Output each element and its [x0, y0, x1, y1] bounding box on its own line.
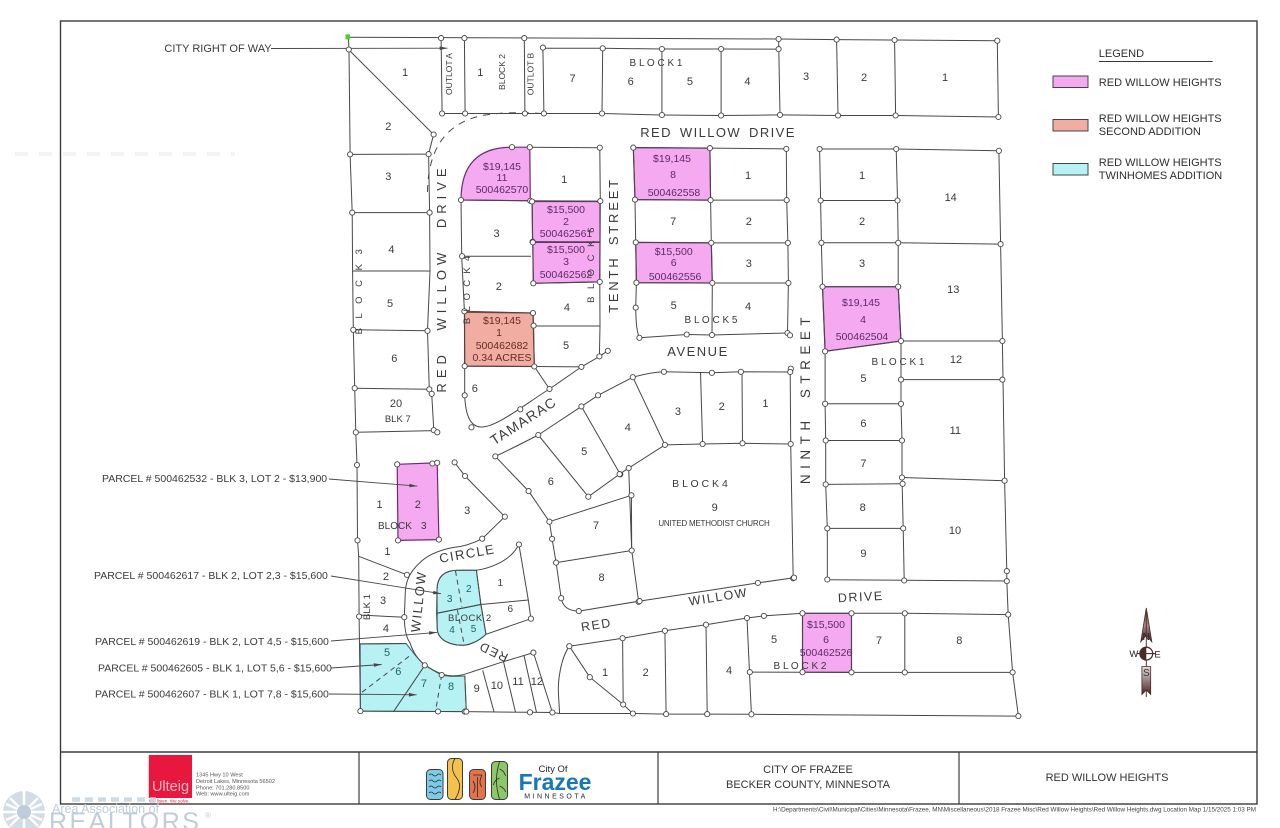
svg-text:RED WILLOW HEIGHTS: RED WILLOW HEIGHTS	[1099, 113, 1222, 125]
svg-text:2: 2	[466, 584, 472, 595]
svg-text:6: 6	[391, 353, 397, 365]
svg-text:E: E	[1154, 649, 1160, 660]
svg-text:CITY OF FRAZEE: CITY OF FRAZEE	[763, 764, 853, 776]
svg-text:B L O C K 5: B L O C K 5	[685, 315, 738, 326]
svg-text:3: 3	[421, 521, 427, 532]
svg-text:$19,145: $19,145	[842, 297, 880, 309]
svg-text:B L O C K 4: B L O C K 4	[462, 254, 473, 324]
svg-text:RED WILLOW DRIVE: RED WILLOW DRIVE	[434, 163, 449, 392]
svg-text:500462558: 500462558	[648, 187, 701, 199]
svg-text:8: 8	[860, 502, 866, 514]
svg-text:BLK 7: BLK 7	[385, 414, 411, 425]
svg-text:4: 4	[564, 302, 570, 314]
svg-text:5: 5	[687, 76, 693, 88]
svg-text:1: 1	[496, 327, 502, 339]
svg-text:RED WILLOW HEIGHTS: RED WILLOW HEIGHTS	[1046, 772, 1169, 784]
svg-text:SECOND ADDITION: SECOND ADDITION	[1099, 126, 1201, 138]
svg-text:5: 5	[563, 340, 569, 352]
svg-text:3: 3	[380, 595, 386, 607]
svg-text:11: 11	[497, 172, 508, 184]
svg-text:500462526: 500462526	[800, 647, 853, 659]
svg-text:12: 12	[531, 676, 543, 688]
svg-text:9: 9	[860, 548, 866, 560]
svg-text:BLK 1: BLK 1	[362, 594, 373, 620]
svg-text:DRIVE: DRIVE	[838, 589, 884, 605]
svg-text:9: 9	[474, 683, 480, 695]
svg-text:$15,500: $15,500	[807, 619, 845, 631]
svg-text:REALTORS: REALTORS	[49, 808, 201, 828]
svg-text:7: 7	[593, 520, 599, 532]
svg-text:500462561: 500462561	[540, 228, 593, 240]
svg-text:B L O C K 4: B L O C K 4	[672, 478, 728, 490]
svg-text:13: 13	[947, 284, 959, 296]
svg-text:®: ®	[205, 811, 211, 820]
svg-text:500462556: 500462556	[649, 271, 702, 283]
svg-text:5: 5	[860, 373, 866, 385]
svg-text:1: 1	[377, 499, 383, 511]
svg-text:NINTH STREET: NINTH STREET	[798, 312, 813, 484]
svg-text:8: 8	[599, 572, 605, 584]
svg-text:5: 5	[671, 300, 677, 312]
svg-text:1: 1	[859, 170, 865, 182]
svg-text:5: 5	[771, 634, 777, 646]
svg-text:5: 5	[387, 298, 393, 310]
svg-text:PARCEL # 500462617 - BLK 2, LO: PARCEL # 500462617 - BLK 2, LOT 2,3 - $1…	[94, 570, 328, 582]
svg-text:3: 3	[746, 258, 752, 270]
svg-text:H:\Departments\Civil\Municipal: H:\Departments\Civil\Municipal\Cities\Mi…	[773, 807, 1256, 814]
svg-text:RED WILLOW DRIVE: RED WILLOW DRIVE	[640, 125, 796, 140]
svg-text:BLOCK: BLOCK	[378, 521, 412, 532]
svg-text:2: 2	[859, 216, 865, 228]
svg-text:1: 1	[745, 170, 751, 182]
svg-text:N: N	[1143, 632, 1150, 643]
svg-text:1: 1	[477, 67, 483, 79]
svg-text:3: 3	[493, 228, 499, 240]
svg-text:1: 1	[561, 174, 567, 186]
svg-text:6: 6	[628, 76, 634, 88]
svg-text:500462682: 500462682	[476, 340, 529, 352]
svg-text:8: 8	[448, 681, 454, 693]
svg-text:$15,500: $15,500	[547, 204, 585, 216]
svg-text:W: W	[1129, 649, 1138, 660]
svg-text:6: 6	[823, 634, 829, 646]
svg-text:6: 6	[395, 666, 401, 678]
svg-text:B L O C K 2: B L O C K 2	[774, 661, 827, 672]
svg-text:UNITED METHODIST CHURCH: UNITED METHODIST CHURCH	[658, 519, 770, 528]
svg-text:2: 2	[746, 216, 752, 228]
svg-text:4: 4	[449, 625, 455, 636]
svg-text:5: 5	[384, 647, 390, 659]
svg-text:PARCEL # 500462532 - BLK 3, LO: PARCEL # 500462532 - BLK 3, LOT 2 - $13,…	[102, 473, 327, 485]
svg-text:6: 6	[860, 418, 866, 430]
svg-text:Web: www.ulteig.com: Web: www.ulteig.com	[196, 792, 250, 798]
svg-text:2: 2	[383, 571, 389, 583]
svg-text:3: 3	[675, 406, 681, 418]
svg-text:7: 7	[860, 458, 866, 470]
svg-text:9: 9	[712, 502, 718, 514]
svg-text:PARCEL # 500462605 - BLK 1, LO: PARCEL # 500462605 - BLK 1, LOT 5,6 - $1…	[98, 663, 332, 675]
svg-text:Phone: 701.280.8500: Phone: 701.280.8500	[196, 785, 250, 791]
svg-text:1: 1	[384, 546, 390, 558]
svg-text:S: S	[1143, 668, 1150, 679]
svg-text:1: 1	[762, 398, 768, 410]
svg-text:RED WILLOW HEIGHTS: RED WILLOW HEIGHTS	[1099, 157, 1222, 169]
svg-text:1: 1	[498, 578, 504, 589]
svg-text:20: 20	[390, 398, 402, 410]
svg-text:500462562: 500462562	[540, 269, 593, 281]
svg-text:B L O C K 6: B L O C K 6	[586, 225, 597, 303]
svg-text:500462570: 500462570	[476, 184, 529, 196]
svg-text:AVENUE: AVENUE	[667, 344, 729, 359]
svg-text:8: 8	[956, 635, 962, 647]
svg-text:5: 5	[471, 624, 477, 635]
svg-text:$19,145: $19,145	[483, 315, 521, 327]
svg-text:14: 14	[945, 192, 957, 204]
svg-text:OUTLOT A: OUTLOT A	[444, 53, 454, 95]
svg-text:0.34 ACRES: 0.34 ACRES	[473, 352, 532, 364]
svg-text:MINNESOTA: MINNESOTA	[524, 794, 588, 801]
svg-text:3: 3	[803, 71, 809, 83]
svg-text:2: 2	[861, 72, 867, 84]
svg-text:RED WILLOW HEIGHTS: RED WILLOW HEIGHTS	[1099, 77, 1222, 89]
svg-text:4: 4	[860, 314, 866, 326]
svg-text:4: 4	[744, 76, 750, 88]
svg-text:4: 4	[745, 301, 751, 313]
svg-text:Frazee: Frazee	[519, 769, 592, 795]
svg-text:3: 3	[563, 256, 569, 268]
svg-text:500462504: 500462504	[836, 331, 889, 343]
svg-text:3: 3	[385, 171, 391, 183]
svg-text:Ulteig: Ulteig	[152, 779, 189, 795]
svg-text:10: 10	[491, 680, 503, 692]
svg-text:3: 3	[464, 505, 470, 517]
svg-text:6: 6	[472, 383, 478, 395]
svg-text:B L O C K 1: B L O C K 1	[872, 357, 925, 368]
svg-text:OUTLOT B: OUTLOT B	[526, 52, 536, 95]
svg-text:2: 2	[643, 667, 649, 679]
svg-text:TENTH STREET: TENTH STREET	[606, 177, 621, 313]
svg-text:3: 3	[447, 594, 453, 605]
svg-text:Detroit Lakes, Minnesota 5650: Detroit Lakes, Minnesota 56502	[196, 779, 275, 785]
svg-text:7: 7	[421, 678, 427, 690]
svg-text:6: 6	[671, 257, 677, 269]
svg-text:4: 4	[726, 665, 732, 677]
svg-text:1: 1	[942, 72, 948, 84]
svg-text:PARCEL # 500462619 - BLK 2, LO: PARCEL # 500462619 - BLK 2, LOT 4,5 - $1…	[95, 636, 329, 648]
svg-text:7: 7	[570, 73, 576, 85]
svg-text:6: 6	[548, 476, 554, 488]
svg-text:TWINHOMES ADDITION: TWINHOMES ADDITION	[1099, 170, 1223, 182]
svg-text:4: 4	[625, 422, 631, 434]
svg-text:4: 4	[383, 623, 389, 635]
svg-text:LEGEND: LEGEND	[1099, 48, 1144, 60]
svg-text:5: 5	[581, 446, 587, 458]
svg-text:BLOCK 2: BLOCK 2	[448, 613, 492, 624]
svg-text:1345 Hwy 10 West: 1345 Hwy 10 West	[196, 773, 243, 779]
svg-text:$15,500: $15,500	[547, 244, 585, 256]
svg-text:B L O C K 1: B L O C K 1	[630, 58, 683, 69]
svg-text:3: 3	[859, 258, 865, 270]
svg-text:B L O C K 3: B L O C K 3	[354, 246, 365, 335]
svg-text:11: 11	[950, 425, 961, 437]
svg-text:7: 7	[876, 635, 882, 647]
svg-text:6: 6	[508, 604, 514, 615]
svg-text:10: 10	[949, 525, 961, 537]
svg-text:CITY RIGHT OF WAY: CITY RIGHT OF WAY	[164, 43, 272, 55]
svg-text:1: 1	[402, 67, 408, 79]
svg-text:BLOCK 2: BLOCK 2	[497, 54, 507, 90]
svg-text:4: 4	[388, 244, 394, 256]
svg-text:2: 2	[385, 121, 391, 133]
svg-text:7: 7	[670, 216, 676, 228]
svg-text:12: 12	[950, 354, 962, 366]
svg-text:2: 2	[563, 216, 569, 228]
svg-text:2: 2	[719, 401, 725, 413]
svg-text:2: 2	[415, 499, 421, 511]
svg-text:11: 11	[512, 676, 523, 688]
svg-text:$19,145: $19,145	[653, 153, 691, 165]
svg-text:2: 2	[496, 281, 502, 293]
svg-text:BECKER COUNTY, MINNESOTA: BECKER COUNTY, MINNESOTA	[726, 779, 891, 791]
svg-text:1: 1	[602, 667, 608, 679]
svg-text:PARCEL # 500462607 - BLK 1, LO: PARCEL # 500462607 - BLK 1, LOT 7,8 - $1…	[95, 689, 329, 701]
svg-text:8: 8	[670, 169, 676, 181]
